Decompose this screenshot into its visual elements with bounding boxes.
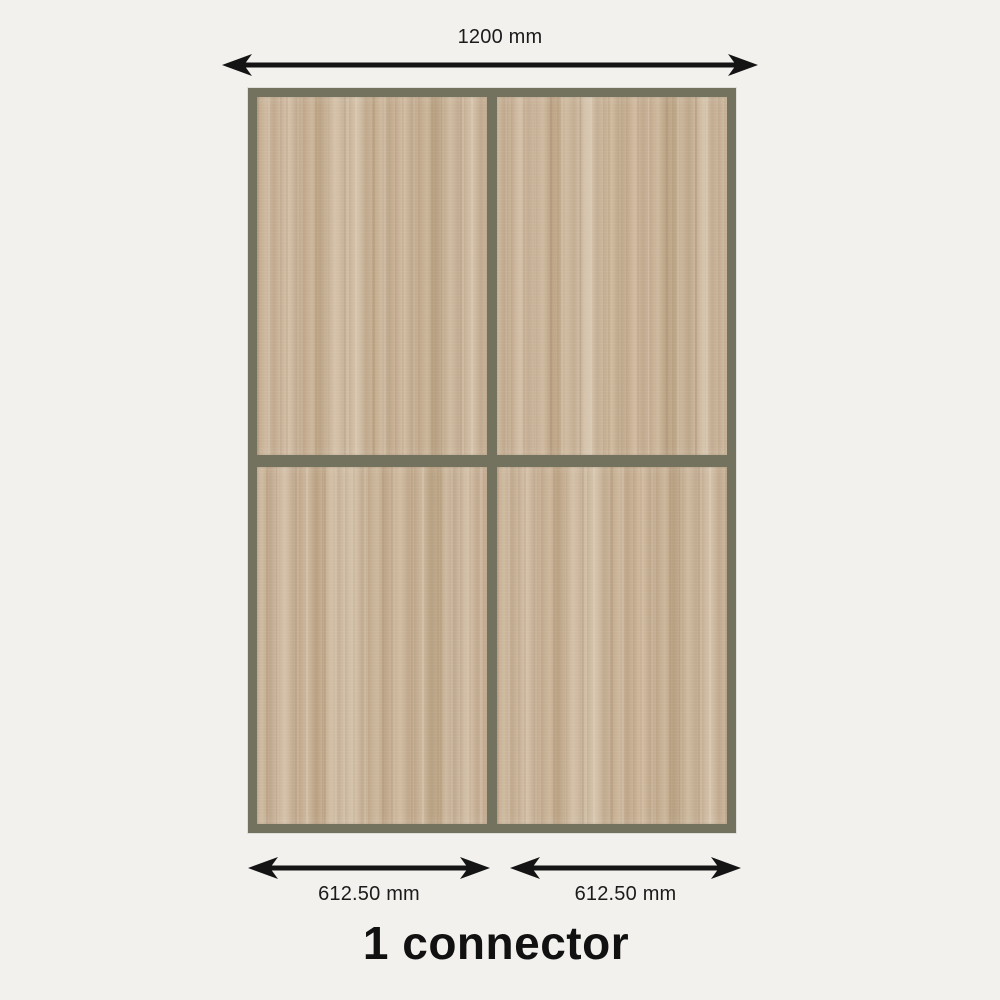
- top-dimension-arrow: [220, 52, 760, 78]
- connector-count-caption: 1 connector: [0, 916, 992, 970]
- wood-panel-top-left: [257, 97, 487, 455]
- wood-panel-bottom-right: [497, 467, 727, 825]
- top-dimension-label: 1200 mm: [0, 26, 1000, 49]
- bottom-left-dimension-label: 612.50 mm: [246, 883, 492, 906]
- bottom-left-dimension-arrow: [246, 855, 492, 881]
- wood-panel-bottom-left: [257, 467, 487, 825]
- wood-panel-top-right: [497, 97, 727, 455]
- bottom-right-dimension-arrow: [508, 855, 743, 881]
- panel-frame: [248, 88, 736, 833]
- bottom-right-dimension-label: 612.50 mm: [508, 883, 743, 906]
- diagram-canvas: 1200 mm 612.50 mm 612.50 mm 1 connector: [0, 0, 1000, 1000]
